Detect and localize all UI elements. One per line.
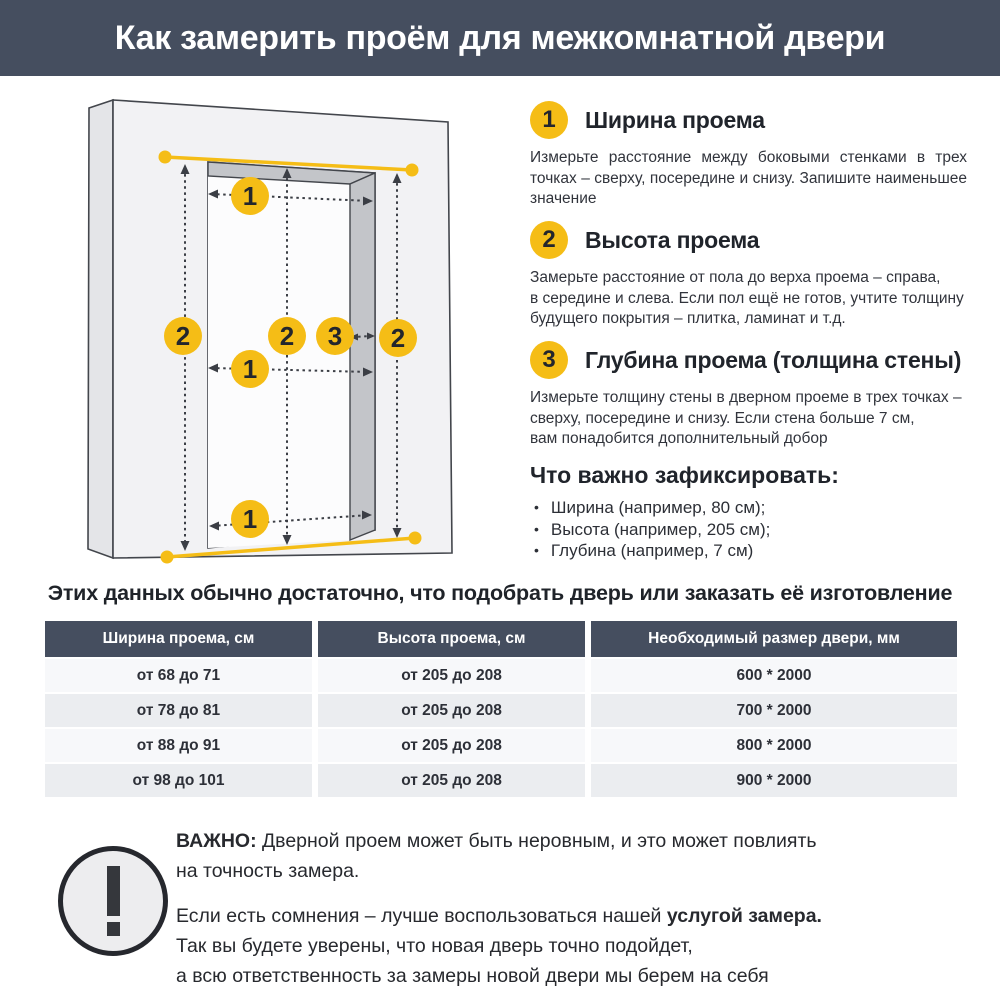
- exclamation-bar: [107, 866, 120, 916]
- bullet-icon: •: [534, 540, 539, 562]
- svg-text:1: 1: [243, 181, 257, 211]
- svg-text:2: 2: [391, 323, 405, 353]
- badge-width-top: 1: [231, 177, 269, 215]
- table-cell: от 78 до 81: [45, 694, 312, 727]
- table-cell: 800 * 2000: [591, 729, 957, 762]
- infographic-page: Как замерить проём для межкомнатной двер…: [0, 0, 1000, 1000]
- svg-text:2: 2: [280, 321, 294, 351]
- notice-important: ВАЖНО: Дверной проем может быть неровным…: [176, 826, 976, 886]
- badge-width-bottom: 1: [231, 500, 269, 538]
- step-width: 1 Ширина проема Измерьте расстояние межд…: [530, 101, 967, 210]
- exclamation-dot: [107, 922, 120, 936]
- step-description: Замерьте расстояние от пола до верха про…: [530, 268, 967, 330]
- table-cell: от 205 до 208: [318, 694, 585, 727]
- step-title: Ширина проема: [585, 107, 765, 134]
- notice-advice-rest: Так вы будете уверены, что новая дверь т…: [176, 935, 769, 987]
- table-cell: 700 * 2000: [591, 694, 957, 727]
- svg-text:1: 1: [243, 354, 257, 384]
- checklist-item: • Глубина (например, 7 см): [534, 540, 964, 562]
- wall-side-face: [88, 100, 113, 558]
- badge-width-middle: 1: [231, 350, 269, 388]
- checklist-item: • Высота (например, 205 см);: [534, 519, 964, 541]
- table-header-cell: Высота проема, см: [318, 621, 585, 657]
- svg-text:1: 1: [243, 504, 257, 534]
- checklist: • Ширина (например, 80 см); • Высота (на…: [534, 497, 964, 562]
- checklist-item-text: Высота (например, 205 см);: [551, 519, 770, 541]
- table-cell: от 205 до 208: [318, 729, 585, 762]
- badge-height-right: 2: [379, 319, 417, 357]
- svg-text:2: 2: [176, 321, 190, 351]
- table-cell: от 88 до 91: [45, 729, 312, 762]
- badge-height-left: 2: [164, 317, 202, 355]
- table-cell: 600 * 2000: [591, 659, 957, 692]
- notice-advice-bold: услугой замера.: [667, 905, 822, 927]
- table-cell: от 205 до 208: [318, 764, 585, 797]
- size-table: Ширина проема, см Высота проема, см Необ…: [45, 621, 957, 797]
- table-header-cell: Ширина проема, см: [45, 621, 312, 657]
- opening-right-reveal: [350, 173, 375, 540]
- bullet-icon: •: [534, 519, 539, 541]
- badge-depth: 3: [316, 317, 354, 355]
- lead-sentence: Этих данных обычно достаточно, что подоб…: [0, 581, 1000, 606]
- step-number-badge: 2: [530, 221, 568, 259]
- svg-text:3: 3: [328, 321, 342, 351]
- table-header-cell: Необходимый размер двери, мм: [591, 621, 957, 657]
- step-number-badge: 3: [530, 341, 568, 379]
- step-description: Измерьте толщину стены в дверном проеме …: [530, 388, 967, 450]
- step-title: Глубина проема (толщина стены): [585, 347, 961, 374]
- badge-height-center: 2: [268, 317, 306, 355]
- table-cell: от 68 до 71: [45, 659, 312, 692]
- checklist-item-text: Ширина (например, 80 см);: [551, 497, 766, 519]
- page-title: Как замерить проём для межкомнатной двер…: [115, 19, 886, 58]
- notice-advice-pre: Если есть сомнения – лучше воспользовать…: [176, 905, 667, 927]
- door-opening-diagram: 1 1 1 2 2 2 3: [45, 85, 515, 585]
- step-description: Измерьте расстояние между боковыми стенк…: [530, 148, 967, 210]
- checklist-item: • Ширина (например, 80 см);: [534, 497, 964, 519]
- notice-important-label: ВАЖНО:: [176, 830, 257, 852]
- checklist-title: Что важно зафиксировать:: [530, 462, 839, 489]
- notice-important-text: Дверной проем может быть неровным, и это…: [176, 830, 817, 882]
- step-title: Высота проема: [585, 227, 759, 254]
- door-opening-interior: [208, 176, 350, 548]
- step-number-badge: 1: [530, 101, 568, 139]
- exclamation-icon: [58, 846, 168, 956]
- notice-text-block: ВАЖНО: Дверной проем может быть неровным…: [176, 826, 976, 991]
- step-depth: 3 Глубина проема (толщина стены) Измерьт…: [530, 341, 967, 450]
- table-cell: от 98 до 101: [45, 764, 312, 797]
- checklist-item-text: Глубина (например, 7 см): [551, 540, 753, 562]
- table-cell: от 205 до 208: [318, 659, 585, 692]
- step-height: 2 Высота проема Замерьте расстояние от п…: [530, 221, 967, 330]
- header-bar: Как замерить проём для межкомнатной двер…: [0, 0, 1000, 76]
- table-cell: 900 * 2000: [591, 764, 957, 797]
- notice-advice: Если есть сомнения – лучше воспользовать…: [176, 901, 976, 991]
- bullet-icon: •: [534, 497, 539, 519]
